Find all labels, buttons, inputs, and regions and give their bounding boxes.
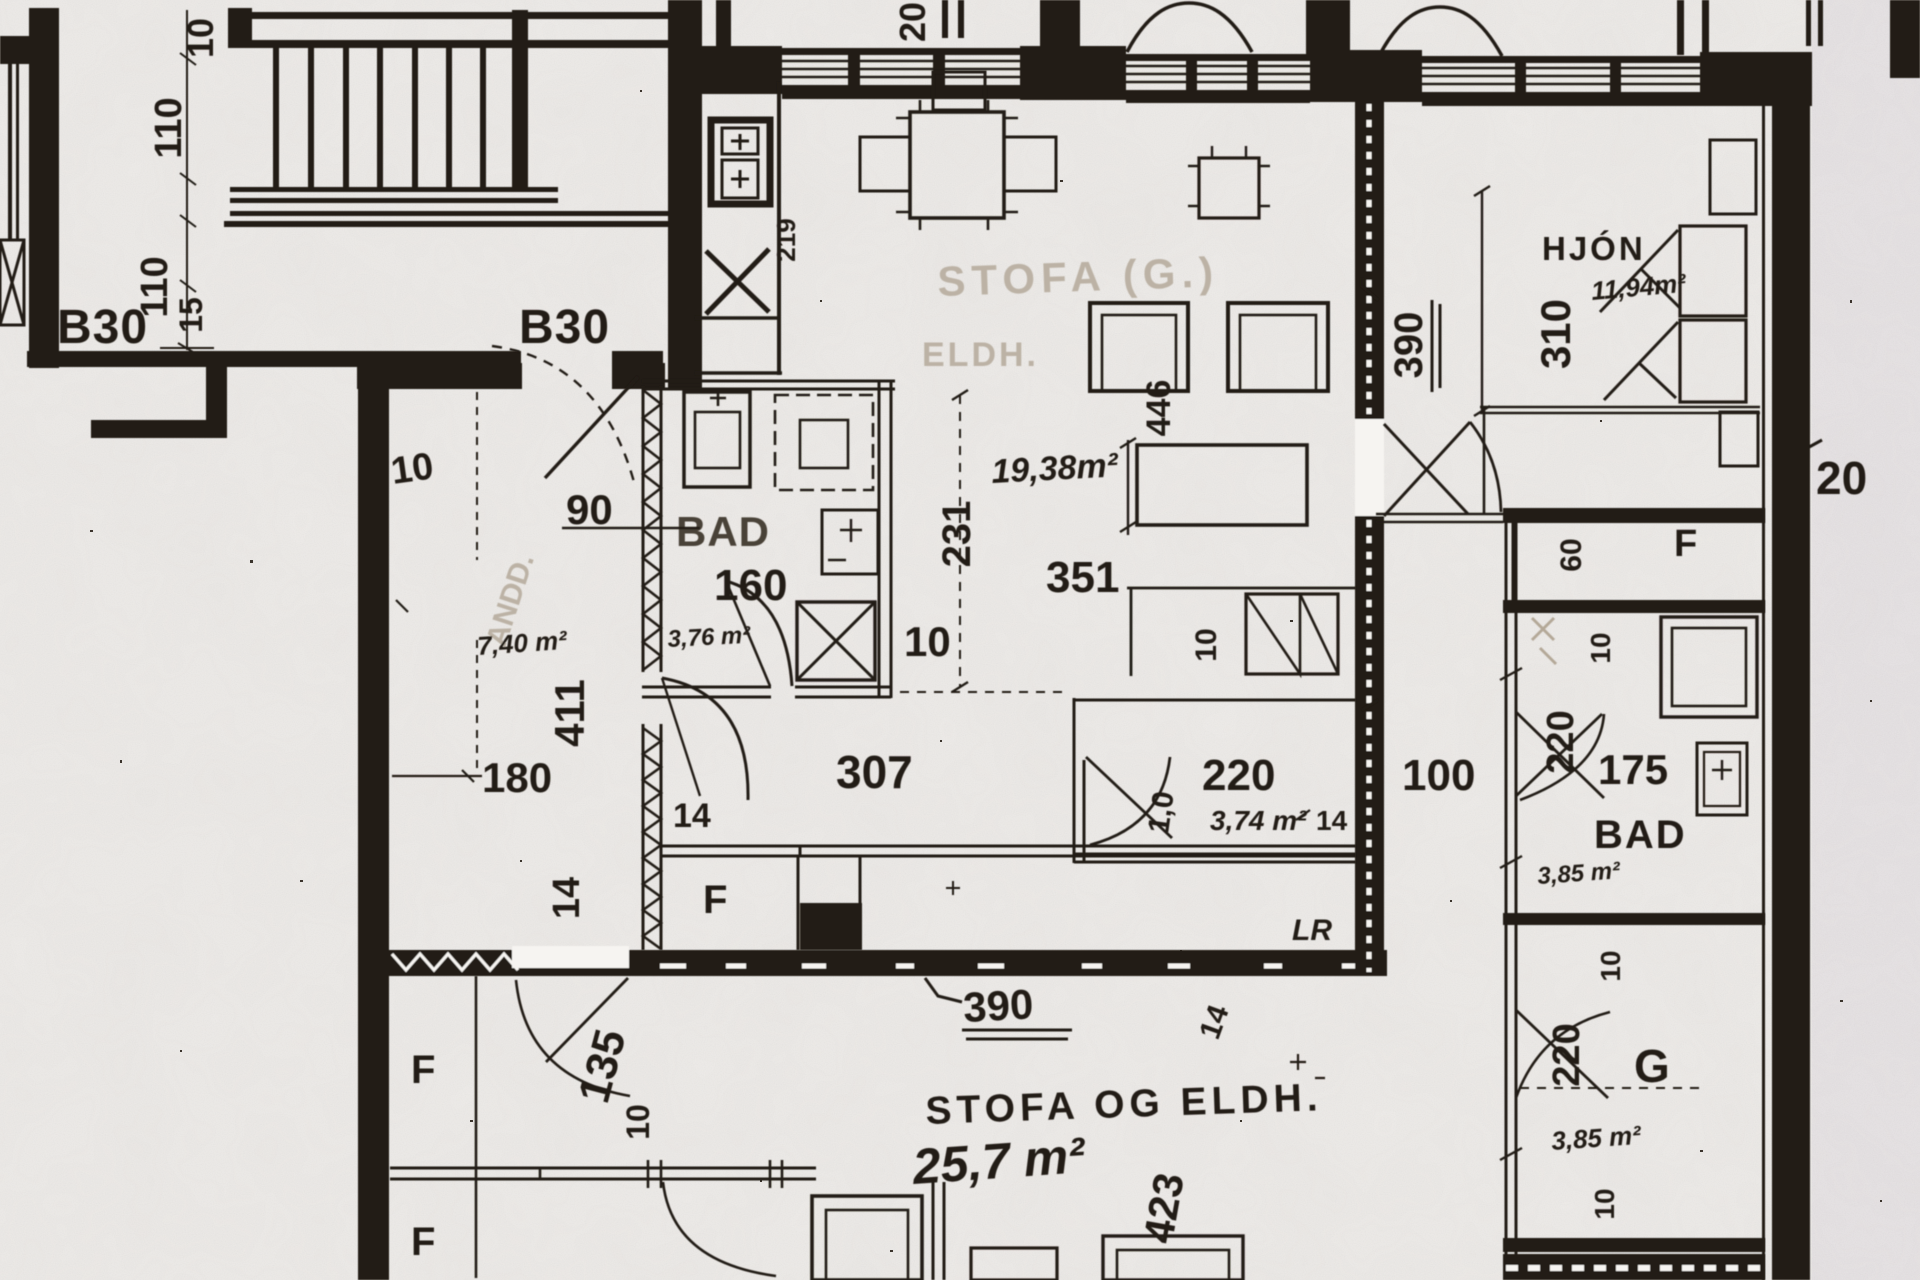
- svg-text:219: 219: [771, 218, 801, 261]
- svg-text:1,0: 1,0: [1142, 789, 1180, 835]
- svg-text:307: 307: [836, 746, 913, 798]
- svg-text:14: 14: [546, 877, 588, 919]
- svg-text:160: 160: [714, 561, 787, 610]
- svg-text:20: 20: [892, 2, 933, 42]
- svg-text:446: 446: [1140, 380, 1178, 437]
- svg-text:7,40 m²: 7,40 m²: [476, 625, 569, 661]
- svg-text:10: 10: [1595, 950, 1626, 981]
- svg-text:20: 20: [1816, 452, 1867, 504]
- svg-text:F: F: [1674, 523, 1697, 565]
- svg-text:B30: B30: [519, 301, 610, 354]
- svg-text:10: 10: [1589, 1188, 1620, 1219]
- svg-text:3,74 m²: 3,74 m²: [1210, 805, 1307, 836]
- svg-text:310: 310: [1532, 299, 1579, 369]
- svg-text:F: F: [703, 878, 727, 922]
- svg-text:14: 14: [1316, 805, 1348, 836]
- svg-text:F: F: [411, 1048, 435, 1092]
- svg-text:10: 10: [1190, 628, 1223, 661]
- svg-text:175: 175: [1598, 746, 1668, 793]
- svg-text:390: 390: [1387, 312, 1431, 379]
- svg-text:90: 90: [566, 486, 613, 533]
- svg-text:180: 180: [482, 754, 552, 801]
- svg-text:390: 390: [962, 980, 1034, 1031]
- svg-text:10: 10: [1585, 632, 1616, 663]
- svg-text:15: 15: [173, 297, 209, 333]
- svg-text:BAD: BAD: [676, 508, 770, 555]
- svg-text:220: 220: [1202, 751, 1275, 800]
- svg-text:LR: LR: [1292, 914, 1332, 947]
- svg-text:B30: B30: [57, 301, 148, 354]
- svg-text:F: F: [411, 1220, 435, 1264]
- svg-text:220: 220: [1546, 1023, 1588, 1086]
- svg-text:220: 220: [1540, 710, 1582, 773]
- svg-text:G: G: [1634, 1040, 1670, 1092]
- svg-text:3,85 m²: 3,85 m²: [1550, 1120, 1643, 1156]
- svg-text:351: 351: [1046, 553, 1119, 602]
- svg-text:19,38m²: 19,38m²: [990, 446, 1120, 491]
- svg-text:10: 10: [180, 18, 221, 58]
- svg-text:HJÓN: HJÓN: [1542, 230, 1646, 267]
- svg-text:STOFA (G.): STOFA (G.): [937, 248, 1220, 305]
- svg-text:60: 60: [1555, 538, 1588, 571]
- svg-text:100: 100: [1402, 751, 1475, 800]
- svg-text:110: 110: [148, 97, 190, 158]
- svg-text:10: 10: [620, 1104, 656, 1140]
- svg-text:BAD: BAD: [1594, 813, 1687, 857]
- svg-text:231: 231: [935, 501, 979, 568]
- svg-text:3,76 m²: 3,76 m²: [667, 622, 752, 653]
- svg-text:10: 10: [904, 618, 951, 665]
- svg-text:411: 411: [546, 679, 593, 747]
- svg-text:14: 14: [673, 797, 711, 835]
- svg-text:10: 10: [388, 445, 436, 492]
- svg-text:ELDH.: ELDH.: [922, 336, 1039, 374]
